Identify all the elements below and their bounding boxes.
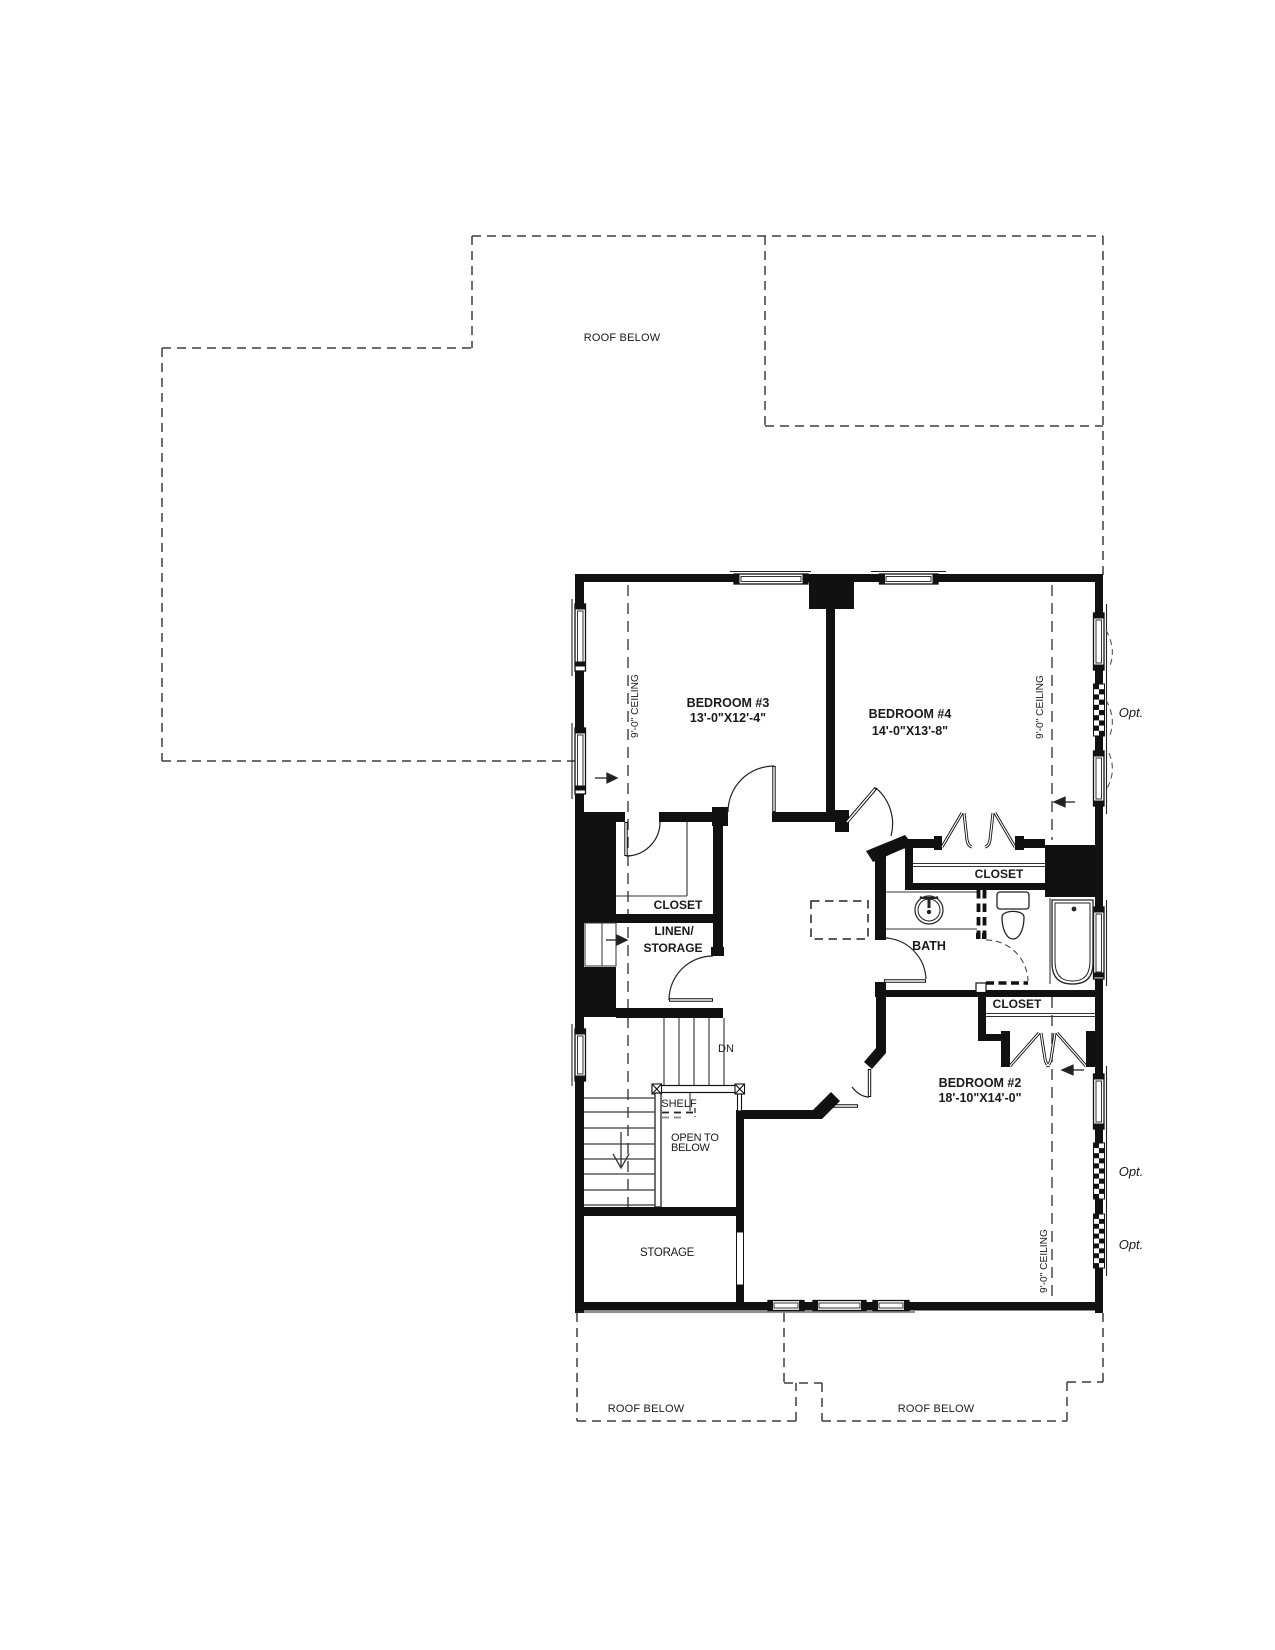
svg-text:STORAGE: STORAGE	[640, 1247, 695, 1259]
svg-text:BEDROOM #2: BEDROOM #2	[939, 1076, 1022, 1090]
svg-text:Opt.: Opt.	[1119, 1164, 1144, 1179]
svg-text:9'-0" CEILING: 9'-0" CEILING	[1039, 1229, 1050, 1293]
svg-text:STORAGE: STORAGE	[643, 941, 702, 955]
svg-text:18'-10"X14'-0": 18'-10"X14'-0"	[938, 1091, 1021, 1105]
svg-text:9'-0" CEILING: 9'-0" CEILING	[1035, 675, 1046, 739]
svg-text:CLOSET: CLOSET	[654, 898, 703, 912]
svg-text:9'-0" CEILING: 9'-0" CEILING	[630, 674, 641, 738]
svg-text:CLOSET: CLOSET	[975, 867, 1024, 881]
svg-text:ROOF BELOW: ROOF BELOW	[584, 332, 661, 344]
svg-text:DN: DN	[718, 1043, 734, 1055]
svg-text:ROOF BELOW: ROOF BELOW	[608, 1403, 685, 1415]
svg-text:13'-0"X12'-4": 13'-0"X12'-4"	[690, 711, 766, 725]
svg-text:Opt.: Opt.	[1119, 1237, 1144, 1252]
svg-text:CLOSET: CLOSET	[993, 997, 1042, 1011]
svg-text:SHELF: SHELF	[661, 1098, 697, 1110]
svg-text:LINEN/: LINEN/	[654, 924, 694, 938]
svg-text:BELOW: BELOW	[671, 1142, 711, 1154]
svg-text:BATH: BATH	[912, 939, 946, 953]
svg-text:ROOF BELOW: ROOF BELOW	[898, 1403, 975, 1415]
svg-text:BEDROOM #4: BEDROOM #4	[869, 707, 952, 721]
svg-text:14'-0"X13'-8": 14'-0"X13'-8"	[872, 724, 948, 738]
svg-text:Opt.: Opt.	[1119, 705, 1144, 720]
svg-text:BEDROOM #3: BEDROOM #3	[687, 696, 770, 710]
